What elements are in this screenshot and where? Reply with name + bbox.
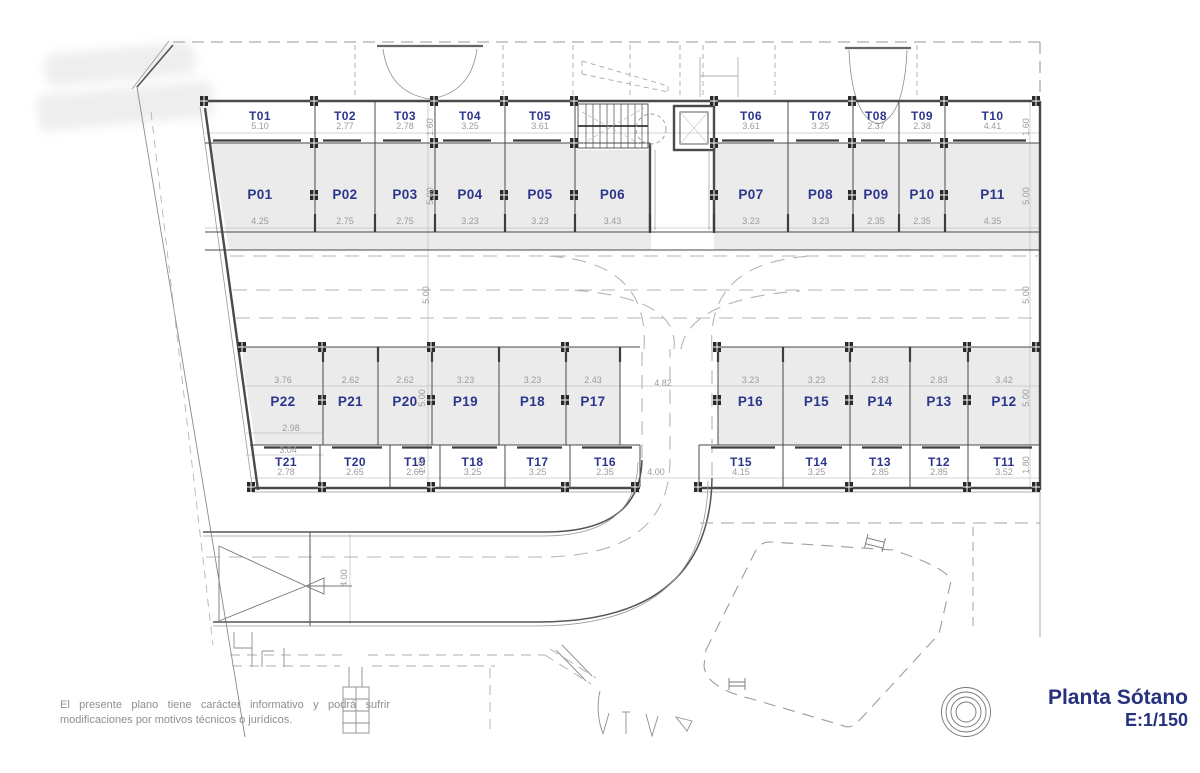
plan-scale: E:1/150 xyxy=(1048,709,1188,732)
dimension-p22-inner-width: 2.98 xyxy=(282,423,300,433)
dimension-storage-bottom-depth-right: 1.80 xyxy=(1021,456,1031,474)
floor-plan-page: T015.10T022.77T032.78T043.25T053.61T063.… xyxy=(0,0,1200,773)
dimension-parking-mid-depth-right: 5.00 xyxy=(1021,389,1031,407)
dimension-t21-top-width: 3.04 xyxy=(279,445,297,455)
plan-title: Planta Sótano xyxy=(1048,686,1188,709)
dimension-labels-layer: 1.601.605.005.005.005.005.005.001.801.80… xyxy=(0,0,1200,773)
dimension-aisle-width-right: 5.00 xyxy=(1021,286,1031,304)
dimension-ramp-corridor-bottom: 4.00 xyxy=(647,467,665,477)
dimension-entrance-ramp-width: 4.00 xyxy=(339,569,349,587)
dimension-aisle-width-left: 5.00 xyxy=(421,286,431,304)
dimension-storage-top-depth-left: 1.60 xyxy=(425,118,435,136)
disclaimer-text: El presente plano tiene carácter informa… xyxy=(60,698,390,729)
title-block: Planta Sótano E:1/150 xyxy=(1048,686,1188,732)
dimension-storage-top-depth-right: 1.60 xyxy=(1021,118,1031,136)
dimension-ramp-corridor-top: 4.82 xyxy=(654,378,672,388)
dimension-storage-bottom-depth-left: 1.80 xyxy=(417,456,427,474)
dimension-parking-top-depth-right: 5.00 xyxy=(1021,187,1031,205)
dimension-parking-top-depth-left: 5.00 xyxy=(425,187,435,205)
dimension-parking-mid-depth-left: 5.00 xyxy=(417,389,427,407)
